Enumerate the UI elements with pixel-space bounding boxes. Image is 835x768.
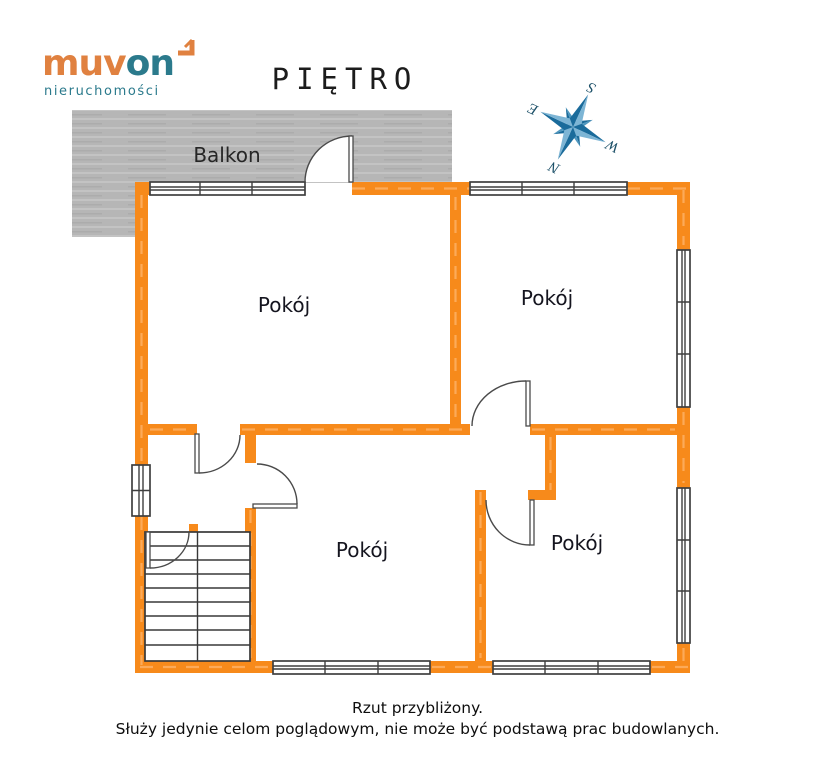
compass-s: S bbox=[584, 78, 598, 96]
window-symbol bbox=[150, 182, 305, 195]
logo-text-secondary: on bbox=[126, 43, 174, 84]
caption-line-1: Rzut przybliżony. bbox=[0, 698, 835, 719]
logo-tagline: nieruchomości bbox=[42, 85, 196, 98]
window-symbol bbox=[132, 465, 150, 516]
room-label-bottom-middle: Pokój bbox=[336, 538, 388, 562]
compass-n: N bbox=[546, 157, 564, 177]
balcony-area bbox=[72, 110, 452, 237]
muvon-logo: muvon nieruchomości bbox=[42, 28, 196, 98]
caption: Rzut przybliżony. Służy jedynie celom po… bbox=[0, 698, 835, 740]
floor-plan: Balkon Pokój Pokój Pokój Pokój N E S W bbox=[0, 0, 835, 768]
window-symbol bbox=[677, 488, 690, 643]
door-symbol bbox=[472, 381, 530, 426]
room-label-top-right: Pokój bbox=[521, 286, 573, 310]
stairs-symbol bbox=[145, 532, 250, 661]
window-symbol bbox=[677, 250, 690, 407]
compass-w: W bbox=[602, 135, 621, 155]
door-symbol bbox=[253, 464, 297, 508]
compass-e: E bbox=[526, 99, 542, 118]
logo-wordmark: muvon bbox=[42, 28, 196, 82]
door-symbol bbox=[486, 500, 534, 545]
window-symbol bbox=[273, 661, 430, 674]
door-symbol bbox=[195, 434, 240, 473]
logo-arrow-icon bbox=[176, 28, 196, 64]
balcony-label: Balkon bbox=[193, 143, 260, 167]
page-title: PIĘTRO bbox=[230, 62, 460, 96]
logo-text-primary: muv bbox=[42, 43, 126, 84]
caption-line-2: Służy jedynie celom poglądowym, nie może… bbox=[0, 719, 835, 740]
window-symbol bbox=[493, 661, 650, 674]
window-symbol bbox=[470, 182, 627, 195]
room-label-bottom-right: Pokój bbox=[551, 531, 603, 555]
compass-rose-icon: N E S W bbox=[507, 59, 641, 195]
room-label-top-left: Pokój bbox=[258, 293, 310, 317]
